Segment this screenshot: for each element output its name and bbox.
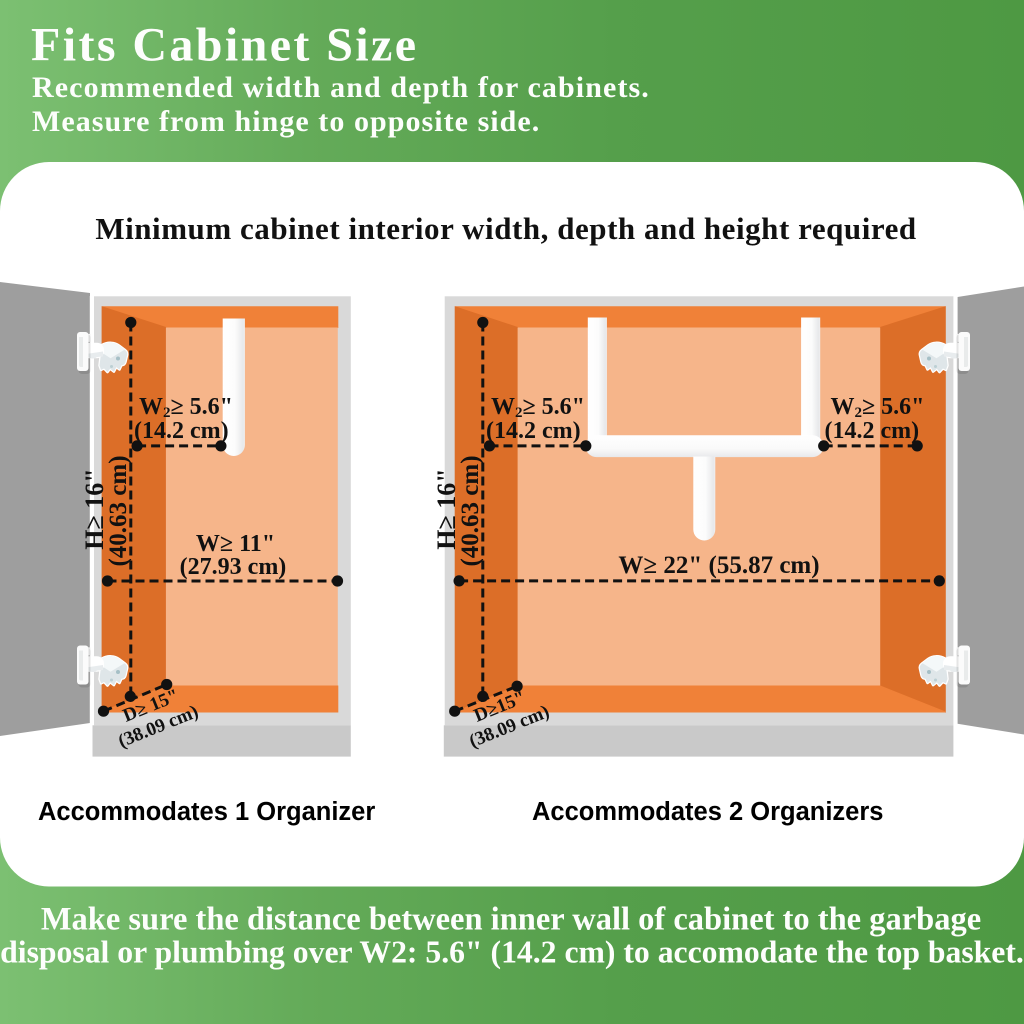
svg-text:(27.93 cm): (27.93 cm) (180, 554, 287, 580)
svg-text:W≥ 22" (55.87 cm): W≥ 22" (55.87 cm) (618, 552, 819, 579)
svg-text:(14.2 cm): (14.2 cm) (825, 418, 920, 444)
svg-text:W2≥ 5.6": W2≥ 5.6" (831, 394, 925, 421)
svg-text:Fits Cabinet Size: Fits Cabinet Size (31, 19, 418, 72)
svg-text:(40.63 cm): (40.63 cm) (105, 455, 132, 566)
svg-text:Minimum cabinet interior width: Minimum cabinet interior width, depth an… (95, 211, 916, 246)
svg-text:Accommodates 1 Organizer: Accommodates 1 Organizer (38, 798, 375, 826)
svg-text:Recommended width and depth fo: Recommended width and depth for cabinets… (32, 71, 650, 104)
svg-text:(14.2 cm): (14.2 cm) (486, 418, 581, 444)
svg-text:W2≥ 5.6": W2≥ 5.6" (139, 394, 233, 421)
svg-text:Make sure the distance between: Make sure the distance between inner wal… (41, 902, 981, 938)
svg-text:(40.63 cm): (40.63 cm) (457, 455, 484, 566)
svg-text:W2≥ 5.6": W2≥ 5.6" (491, 394, 585, 421)
svg-text:Accommodates 2 Organizers: Accommodates 2 Organizers (532, 798, 883, 826)
svg-text:disposal or plumbing over W2:: disposal or plumbing over W2: 5.6" (14.2… (0, 935, 1024, 970)
svg-text:Measure from hinge to opposite: Measure from hinge to opposite side. (32, 105, 540, 138)
svg-text:(14.2 cm): (14.2 cm) (134, 418, 229, 444)
